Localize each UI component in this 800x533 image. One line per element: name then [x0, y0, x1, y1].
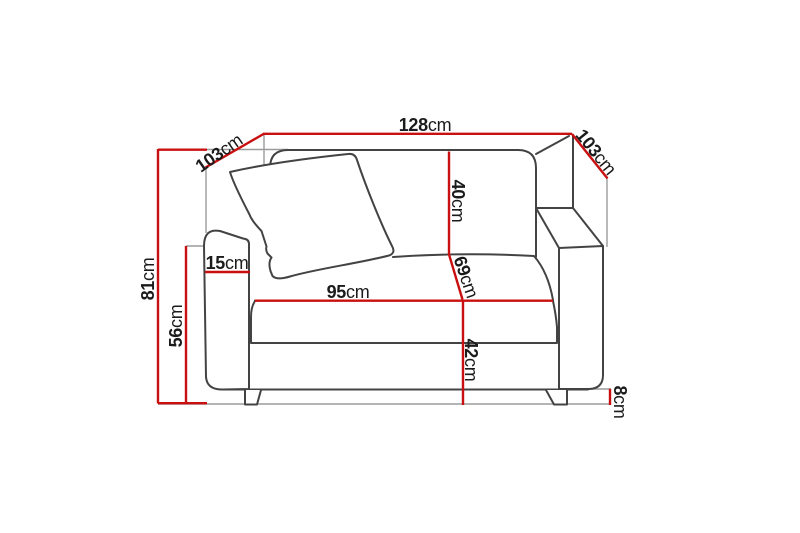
- dimension-unit: cm: [138, 258, 158, 281]
- dimension-value: 95: [327, 282, 346, 302]
- dimension-label-armrest-height: 56cm: [167, 305, 185, 348]
- right-leg: [546, 390, 567, 405]
- dimension-unit: cm: [346, 282, 369, 302]
- dimension-value: 15: [206, 253, 225, 273]
- left-leg: [245, 390, 261, 405]
- dimension-value: 81: [138, 281, 158, 300]
- dimension-unit: cm: [428, 115, 451, 135]
- sofa-outline: [204, 135, 603, 405]
- dimension-label-overall-width: 128cm: [399, 116, 452, 134]
- right-armrest-top: [536, 208, 603, 248]
- dimension-unit: cm: [166, 305, 186, 328]
- dimension-label-seat-width: 95cm: [327, 283, 370, 301]
- dimension-label-overall-height: 81cm: [139, 258, 157, 301]
- dimension-label-armrest-width: 15cm: [206, 254, 249, 272]
- dimension-unit: cm: [461, 358, 481, 381]
- dimension-value: 40: [448, 180, 468, 199]
- dimension-value: 56: [166, 328, 186, 347]
- dimension-label-leg-height: 8cm: [611, 385, 629, 418]
- sofa-dimension-diagram: 128cm 103cm 103cm 81cm 56cm 15cm 95cm 40…: [0, 0, 800, 533]
- dimension-unit: cm: [610, 395, 630, 418]
- dimension-value: 42: [461, 339, 481, 358]
- dimension-label-backrest-height: 40cm: [449, 180, 467, 223]
- diagram-canvas: [0, 0, 800, 533]
- dimension-label-seat-height: 42cm: [462, 339, 480, 382]
- dimension-line-overall-height: [158, 149, 207, 404]
- dimension-unit: cm: [448, 199, 468, 222]
- right-armrest-front: [559, 246, 603, 389]
- dimension-value: 128: [399, 115, 428, 135]
- dimension-value: 8: [610, 385, 630, 395]
- dimension-unit: cm: [225, 253, 248, 273]
- backrest-side-edge: [536, 136, 569, 154]
